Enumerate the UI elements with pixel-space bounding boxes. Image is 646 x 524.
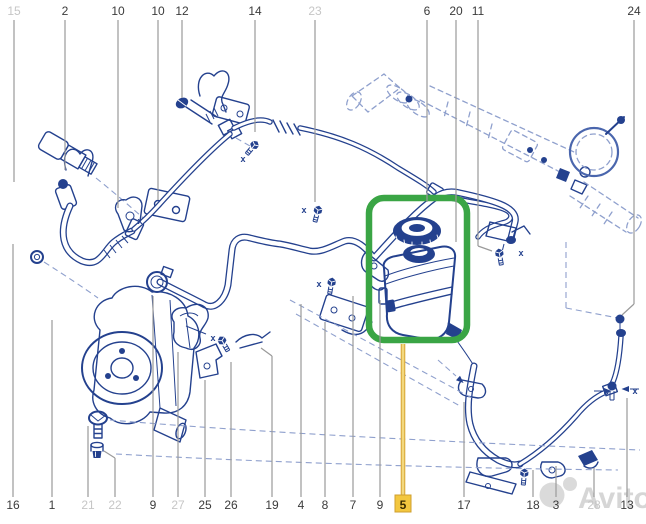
svg-text:19: 19	[265, 498, 279, 512]
svg-text:3: 3	[553, 498, 560, 512]
svg-text:5: 5	[400, 498, 407, 512]
return-hose	[468, 315, 626, 465]
o-ring	[31, 251, 43, 263]
callout-top-12: 12	[175, 4, 189, 98]
svg-text:23: 23	[308, 4, 322, 18]
callout-bottom-4: 4	[298, 304, 305, 512]
curved-clip	[172, 304, 208, 349]
callout-bottom-22: 22	[108, 458, 122, 512]
callout-bottom-21: 21	[81, 426, 95, 512]
svg-text:6: 6	[424, 4, 431, 18]
svg-text:4: 4	[298, 498, 305, 512]
reservoir-cap	[393, 217, 441, 248]
steering-pump	[82, 286, 199, 442]
svg-text:12: 12	[175, 4, 189, 18]
callout-top-14: 14	[248, 4, 262, 132]
svg-text:x: x	[518, 248, 523, 258]
svg-text:22: 22	[108, 498, 122, 512]
bolt	[326, 277, 337, 295]
svg-text:28: 28	[587, 498, 601, 512]
l-bracket	[196, 344, 222, 378]
svg-text:x: x	[137, 216, 142, 226]
svg-text:2: 2	[62, 4, 69, 18]
fluid-reservoir	[379, 245, 474, 366]
pump-hose	[63, 206, 144, 263]
callout-bottom-16: 16	[6, 244, 20, 512]
svg-text:16: 16	[6, 498, 20, 512]
svg-text:8: 8	[322, 498, 329, 512]
support-plate	[319, 294, 372, 335]
callout-bottom-18: 18	[526, 470, 540, 512]
svg-text:7: 7	[350, 498, 357, 512]
leader-line	[236, 138, 250, 146]
svg-text:21: 21	[81, 498, 95, 512]
long-bolt	[174, 95, 218, 124]
svg-text:10: 10	[151, 4, 165, 18]
callout-bottom-8: 8	[322, 322, 329, 512]
callout-bottom-5: 5	[395, 344, 411, 512]
suction-hose	[160, 192, 516, 306]
pressure-pipe	[134, 120, 511, 237]
diagram-art: x x x x x x x	[31, 71, 644, 494]
bolt	[519, 468, 528, 485]
svg-text:x: x	[301, 205, 306, 215]
push-clip	[91, 442, 103, 458]
pump-pulley	[82, 332, 162, 404]
svg-text:9: 9	[377, 498, 384, 512]
hose-clip	[541, 450, 598, 478]
upper-bracket	[198, 71, 250, 124]
svg-text:15: 15	[7, 4, 21, 18]
svg-text:x: x	[240, 154, 245, 164]
svg-text:17: 17	[457, 498, 471, 512]
svg-text:x: x	[316, 279, 321, 289]
callout-top-10: 10	[111, 4, 125, 208]
svg-text:18: 18	[526, 498, 540, 512]
callout-bottom-19: 19	[265, 356, 279, 512]
svg-text:x: x	[210, 333, 215, 343]
rack-boot	[570, 182, 644, 236]
callout-bottom-9: 9	[377, 300, 384, 512]
svg-text:26: 26	[224, 498, 238, 512]
svg-text:11: 11	[472, 4, 485, 18]
parts-diagram: x x x x x x x Avito 15210101214236201124…	[0, 0, 646, 524]
diagram-canvas: x x x x x x x Avito 15210101214236201124…	[0, 0, 646, 524]
svg-text:24: 24	[627, 4, 641, 18]
leader-line	[44, 262, 98, 298]
callout-bottom-26: 26	[224, 362, 238, 512]
leader-line	[290, 300, 472, 406]
rack-ring	[570, 116, 625, 176]
callout-top-24: 24	[627, 4, 641, 304]
svg-text:20: 20	[449, 4, 463, 18]
callout-top-20: 20	[449, 4, 463, 242]
callout-top-6: 6	[424, 4, 431, 202]
callout-top-11: 11	[472, 4, 485, 246]
bolt	[244, 139, 261, 157]
small-bracket	[236, 332, 270, 348]
svg-text:14: 14	[248, 4, 262, 18]
callout-top-15: 15	[7, 4, 21, 182]
bolt	[495, 248, 506, 266]
leader-line	[566, 242, 618, 318]
callout-bottom-9: 9	[150, 296, 157, 512]
svg-text:9: 9	[150, 498, 157, 512]
svg-text:1: 1	[49, 498, 56, 512]
callout-top-23: 23	[308, 4, 322, 202]
svg-text:x: x	[632, 386, 637, 396]
callout-top-10: 10	[151, 4, 165, 200]
callout-bottom-25: 25	[198, 380, 212, 512]
callout-bottom-1: 1	[49, 320, 56, 512]
svg-text:27: 27	[171, 498, 185, 512]
svg-text:13: 13	[620, 498, 634, 512]
bolt	[311, 205, 323, 223]
svg-text:25: 25	[198, 498, 212, 512]
svg-text:10: 10	[111, 4, 125, 18]
rack-detail	[406, 96, 413, 103]
